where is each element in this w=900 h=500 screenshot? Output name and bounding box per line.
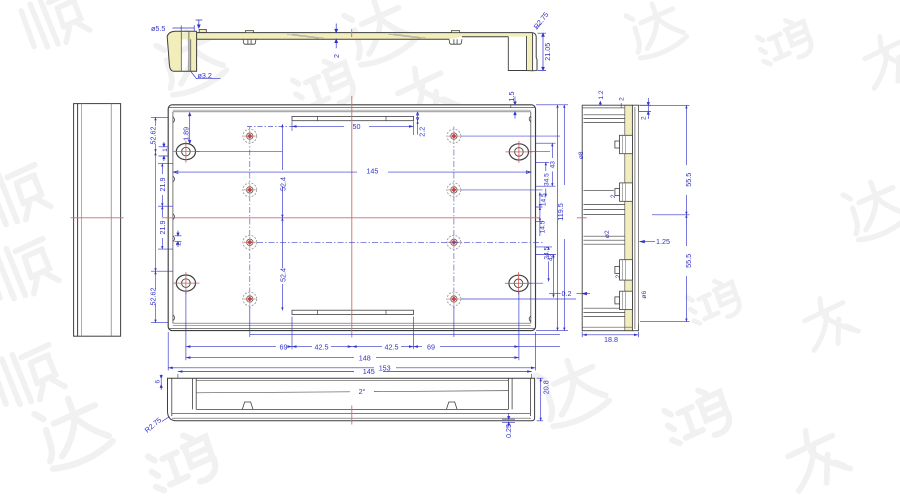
svg-text:ø8: ø8	[578, 151, 585, 159]
svg-text:20.8: 20.8	[541, 380, 550, 394]
svg-text:55.5: 55.5	[684, 173, 693, 187]
svg-text:43: 43	[547, 254, 554, 262]
svg-text:21.9: 21.9	[158, 221, 167, 235]
svg-text:ø2: ø2	[604, 230, 611, 238]
svg-text:2°: 2°	[359, 387, 366, 396]
svg-text:34.5: 34.5	[544, 173, 551, 186]
svg-text:69: 69	[427, 342, 435, 351]
svg-text:153: 153	[379, 364, 391, 373]
svg-text:21.9: 21.9	[158, 178, 167, 192]
svg-text:1: 1	[162, 148, 169, 152]
svg-text:50: 50	[353, 122, 361, 131]
svg-text:1.5: 1.5	[507, 92, 516, 102]
svg-text:55.5: 55.5	[684, 254, 693, 268]
svg-text:2: 2	[176, 242, 183, 246]
svg-text:42.5: 42.5	[315, 342, 329, 351]
svg-text:119.5: 119.5	[556, 203, 565, 220]
svg-text:52.4: 52.4	[278, 268, 287, 282]
svg-text:148: 148	[359, 353, 371, 362]
svg-text:ø3.2: ø3.2	[198, 71, 212, 80]
svg-text:69: 69	[280, 342, 288, 351]
svg-text:2: 2	[619, 97, 626, 101]
svg-text:145: 145	[363, 367, 375, 376]
svg-text:2: 2	[332, 54, 341, 58]
svg-text:14.5: 14.5	[540, 220, 547, 233]
svg-text:43: 43	[550, 161, 557, 169]
svg-text:52.62: 52.62	[148, 127, 157, 145]
svg-text:21.05: 21.05	[543, 43, 552, 61]
svg-text:ø5.5: ø5.5	[151, 24, 165, 33]
svg-text:ø6: ø6	[641, 291, 648, 299]
svg-text:145: 145	[366, 167, 378, 176]
svg-text:42.5: 42.5	[385, 342, 399, 351]
svg-text:1.89: 1.89	[182, 127, 191, 141]
svg-text:2.2: 2.2	[417, 127, 426, 137]
svg-text:2: 2	[610, 194, 617, 198]
svg-text:0.25: 0.25	[504, 424, 513, 438]
svg-text:2: 2	[615, 274, 622, 278]
svg-text:2: 2	[640, 116, 647, 120]
svg-text:1.25: 1.25	[656, 237, 670, 246]
svg-text:1.2: 1.2	[598, 90, 605, 99]
svg-text:52.4: 52.4	[278, 177, 287, 191]
svg-text:6: 6	[155, 380, 162, 384]
svg-text:52.62: 52.62	[148, 288, 157, 306]
svg-text:18.8: 18.8	[604, 335, 618, 344]
svg-text:14.5: 14.5	[540, 193, 547, 206]
svg-text:0.2: 0.2	[562, 289, 572, 298]
